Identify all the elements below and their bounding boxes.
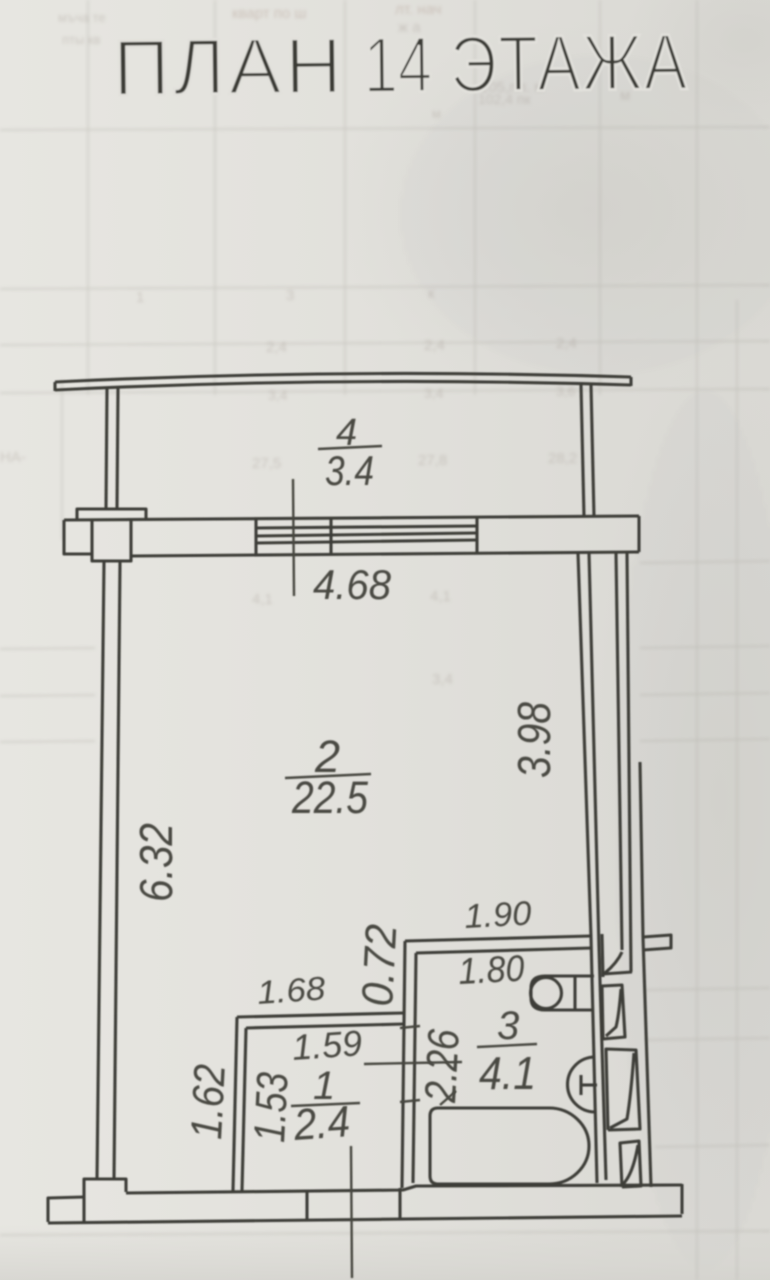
svg-text:28,2: 28,2 <box>548 450 577 467</box>
svg-text:3,4: 3,4 <box>432 671 453 688</box>
svg-text:мъча те: мъча те <box>58 10 106 25</box>
svg-text:ПЛАН: ПЛАН <box>113 21 346 112</box>
svg-text:1.90: 1.90 <box>463 895 532 936</box>
svg-text:4,1: 4,1 <box>252 591 273 608</box>
svg-text:2.4: 2.4 <box>291 1097 351 1150</box>
svg-text:14: 14 <box>363 21 432 110</box>
svg-text:пты кв: пты кв <box>62 32 101 47</box>
svg-text:3: 3 <box>286 287 294 304</box>
svg-text:1.53: 1.53 <box>245 1071 298 1144</box>
svg-text:1.68: 1.68 <box>256 969 327 1011</box>
svg-text:кварт по ш: кварт по ш <box>232 5 306 22</box>
svg-text:4.68: 4.68 <box>313 561 392 608</box>
svg-text:ЭТАЖА: ЭТАЖА <box>450 19 689 109</box>
svg-text:НА-: НА- <box>0 449 26 466</box>
svg-text:27,5: 27,5 <box>252 455 281 472</box>
svg-text:3,6: 3,6 <box>556 383 576 399</box>
svg-text:к: к <box>428 285 435 302</box>
svg-text:6.32: 6.32 <box>130 823 182 902</box>
svg-text:2,4: 2,4 <box>424 337 445 354</box>
svg-text:лт. нач: лт. нач <box>395 1 441 18</box>
svg-text:2.26: 2.26 <box>416 1028 469 1105</box>
svg-text:4.1: 4.1 <box>479 1047 536 1099</box>
svg-text:3.4: 3.4 <box>325 447 374 494</box>
svg-text:4,1: 4,1 <box>430 588 451 605</box>
svg-text:1.59: 1.59 <box>291 1022 364 1068</box>
svg-text:0.72: 0.72 <box>353 923 406 1007</box>
svg-text:3.98: 3.98 <box>508 702 560 778</box>
svg-text:1.80: 1.80 <box>457 948 525 992</box>
svg-text:3,4: 3,4 <box>424 385 444 401</box>
svg-text:3: 3 <box>497 1004 519 1048</box>
svg-text:2,4: 2,4 <box>266 339 287 356</box>
svg-text:3,4: 3,4 <box>268 387 288 403</box>
svg-text:1: 1 <box>136 289 144 306</box>
svg-text:27,8: 27,8 <box>418 452 447 469</box>
svg-text:м: м <box>432 106 441 121</box>
svg-text:22.5: 22.5 <box>291 772 369 823</box>
svg-text:1.62: 1.62 <box>182 1063 235 1140</box>
svg-text:2,4: 2,4 <box>556 335 577 352</box>
